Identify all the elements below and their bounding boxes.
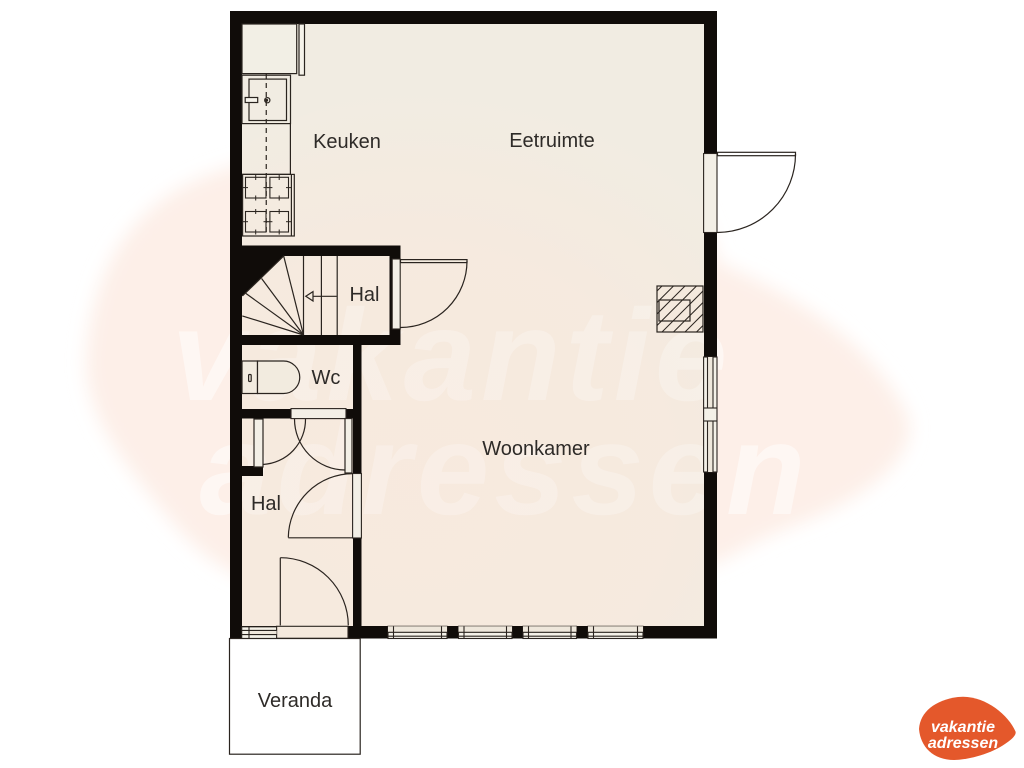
svg-text:Woonkamer: Woonkamer bbox=[482, 438, 590, 460]
svg-text:Keuken: Keuken bbox=[313, 131, 381, 153]
svg-text:vakantie: vakantie bbox=[931, 719, 995, 736]
svg-text:Eetruimte: Eetruimte bbox=[509, 130, 595, 152]
svg-text:Wc: Wc bbox=[312, 367, 341, 389]
svg-text:Hal: Hal bbox=[349, 284, 379, 306]
svg-text:adressen: adressen bbox=[928, 735, 998, 752]
svg-text:Hal: Hal bbox=[251, 493, 281, 515]
svg-text:Veranda: Veranda bbox=[258, 690, 333, 712]
